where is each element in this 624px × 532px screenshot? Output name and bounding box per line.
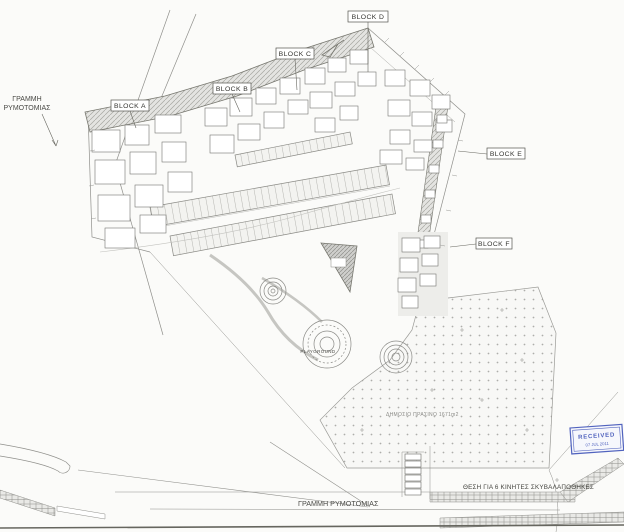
bin-6 bbox=[405, 489, 421, 495]
bottom-road-edge bbox=[0, 525, 624, 528]
pool bbox=[321, 243, 357, 292]
playground-label: PLAYGROUND bbox=[300, 349, 336, 354]
block-label-e-text: BLOCK E bbox=[490, 151, 522, 158]
block-label-a-text: BLOCK A bbox=[114, 103, 146, 110]
building-band-arc bbox=[85, 28, 374, 132]
received-stamp: RECEIVED 07 JUL 2011 bbox=[570, 424, 624, 454]
site-plan-sheet: BLOCK A BLOCK B BLOCK C BLOCK D BLOCK E … bbox=[0, 0, 624, 532]
pool-label-box bbox=[331, 258, 346, 267]
block-label-e: BLOCK E bbox=[458, 148, 525, 159]
spiral-plaza bbox=[260, 278, 286, 304]
block-label-f: BLOCK F bbox=[450, 238, 512, 249]
road-line-lower bbox=[150, 509, 560, 510]
bin-3 bbox=[405, 468, 421, 474]
street-line-label-top-1: ΓΡΑΜΜΗ bbox=[12, 96, 41, 103]
block-label-b-text: BLOCK B bbox=[216, 86, 248, 93]
walkway-1 bbox=[210, 255, 318, 360]
block-label-f-text: BLOCK F bbox=[478, 241, 510, 248]
garbage-note-label: ΘΕΣΗ ΓΙΑ 6 ΚΙΝΗΤΕΣ ΣΚΥΒΑΛΑΠΟΘΗΚΕΣ bbox=[463, 484, 594, 491]
crossing-bar bbox=[57, 506, 105, 519]
bin-2 bbox=[405, 461, 421, 467]
public-green-label: ΔΗΜΟΣΙΟ ΠΡΑΣΙΝΟ 1671m2 bbox=[386, 412, 459, 418]
street-line-label-bottom: ΓΡΑΜΜΗ ΡΥΜΟΤΟΜΙΑΣ bbox=[298, 499, 379, 508]
bin-1 bbox=[405, 454, 421, 460]
street-line-arrow bbox=[42, 114, 58, 146]
block-label-d-text: BLOCK D bbox=[352, 14, 385, 21]
street-line-label-top-2: ΡΥΜΟΤΟΜΙΑΣ bbox=[4, 105, 52, 112]
sidewalk-hatch-right bbox=[430, 492, 575, 502]
road-curve-1 bbox=[0, 444, 66, 462]
sidewalk-hatch-diagonal bbox=[560, 458, 624, 502]
site-plan-drawing: BLOCK A BLOCK B BLOCK C BLOCK D BLOCK E … bbox=[0, 0, 624, 532]
sidewalk-hatch-left bbox=[0, 490, 55, 516]
block-label-c-text: BLOCK C bbox=[279, 51, 312, 58]
bin-4 bbox=[405, 475, 421, 481]
bin-5 bbox=[405, 482, 421, 488]
playground-rings bbox=[303, 320, 351, 368]
